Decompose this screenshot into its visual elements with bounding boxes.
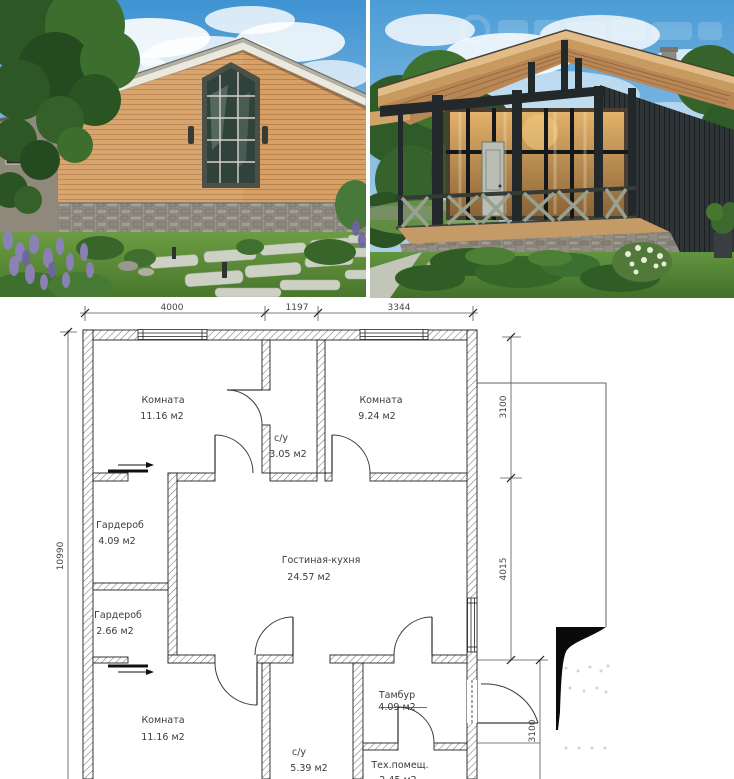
room-label-bedroom-2: Комната 9.24 м2 (358, 395, 402, 422)
svg-text:Гардероб: Гардероб (94, 610, 142, 621)
dim-right-1: 3100 (499, 395, 509, 418)
window-symbols (138, 330, 477, 653)
dim-top-3: 3344 (388, 303, 411, 313)
wall-sconce (262, 126, 268, 144)
svg-text:4.09 м2: 4.09 м2 (378, 702, 415, 713)
svg-text:5.39 м2: 5.39 м2 (290, 763, 327, 774)
room-label-bedroom-3: Комната 11.16 м2 (141, 715, 184, 743)
svg-text:с/у: с/у (292, 747, 306, 758)
svg-text:Тамбур: Тамбур (378, 690, 415, 701)
entry-arrows (108, 462, 154, 675)
wall-sconce (188, 126, 194, 144)
photo-porch (370, 0, 734, 298)
svg-text:11.16 м2: 11.16 м2 (141, 732, 184, 743)
svg-text:Комната: Комната (359, 395, 402, 406)
dim-right-2: 4015 (499, 558, 509, 581)
room-label-bathroom-2: с/у 5.39 м2 (290, 747, 327, 774)
svg-text:24.57 м2: 24.57 м2 (287, 572, 330, 583)
svg-text:4.09 м2: 4.09 м2 (98, 536, 135, 547)
arched-window (202, 62, 260, 188)
flowering-bush (612, 242, 672, 282)
svg-text:3.05 м2: 3.05 м2 (269, 449, 306, 460)
listing-image: 4000 1197 3344 10990 3100 4015 3100 Комн… (0, 0, 734, 779)
svg-text:11.16 м2: 11.16 м2 (140, 411, 183, 422)
terrace-outline (477, 383, 606, 627)
dim-right-3: 3100 (528, 719, 538, 742)
floor-plan: 4000 1197 3344 10990 3100 4015 3100 Комн… (0, 297, 734, 779)
watermark-mark (556, 627, 606, 730)
dim-top-2: 1197 (286, 303, 309, 313)
svg-text:2.45 м2: 2.45 м2 (379, 775, 416, 779)
svg-text:Комната: Комната (141, 395, 184, 406)
room-label-bathroom-1: с/у 3.05 м2 (269, 433, 306, 460)
room-label-vestibule: Тамбур 4.09 м2 (378, 690, 416, 713)
svg-text:Гостиная-кухня: Гостиная-кухня (282, 555, 361, 566)
room-label-tech-room: Тех.помещ. 2.45 м2 (370, 760, 428, 779)
dim-top-1: 4000 (161, 303, 184, 313)
room-label-wardrobe-1: Гардероб 4.09 м2 (96, 520, 144, 547)
svg-text:Тех.помещ.: Тех.помещ. (370, 760, 428, 771)
dim-left: 10990 (56, 541, 66, 570)
svg-text:Комната: Комната (141, 715, 184, 726)
room-label-living-kitchen: Гостиная-кухня 24.57 м2 (282, 555, 361, 583)
room-label-wardrobe-2: Гардероб 2.66 м2 (94, 610, 142, 637)
svg-text:Гардероб: Гардероб (96, 520, 144, 531)
svg-text:2.66 м2: 2.66 м2 (96, 626, 133, 637)
photo-front-facade (0, 0, 366, 297)
svg-text:с/у: с/у (274, 433, 288, 444)
svg-text:9.24 м2: 9.24 м2 (358, 411, 395, 422)
room-label-bedroom-1: Комната 11.16 м2 (140, 395, 184, 422)
watermark-dots (565, 665, 610, 750)
